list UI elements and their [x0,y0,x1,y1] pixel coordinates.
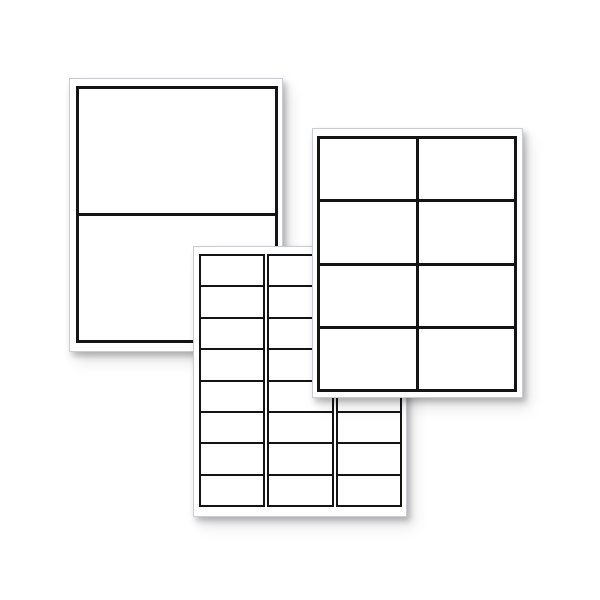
blank-label [201,382,263,411]
blank-label [269,444,331,473]
blank-label [269,413,331,442]
label-column-strip [199,254,265,507]
blank-label [419,329,515,389]
product-photo-canvas [0,0,600,600]
blank-label [201,256,263,285]
blank-label [320,266,416,326]
blank-label [419,139,515,199]
blank-label [320,202,416,262]
blank-label [338,413,400,442]
blank-label [201,350,263,379]
blank-label [201,413,263,442]
label-grid-8up [317,136,517,392]
blank-label [419,266,515,326]
blank-label [201,444,263,473]
blank-label [269,476,331,505]
blank-label [338,476,400,505]
blank-label [320,139,416,199]
label-sheet-8up-shipping [312,128,523,398]
blank-label [201,287,263,316]
blank-label [201,476,263,505]
blank-label [320,329,416,389]
blank-label [419,202,515,262]
blank-label [79,89,275,213]
blank-label [201,319,263,348]
blank-label [338,444,400,473]
